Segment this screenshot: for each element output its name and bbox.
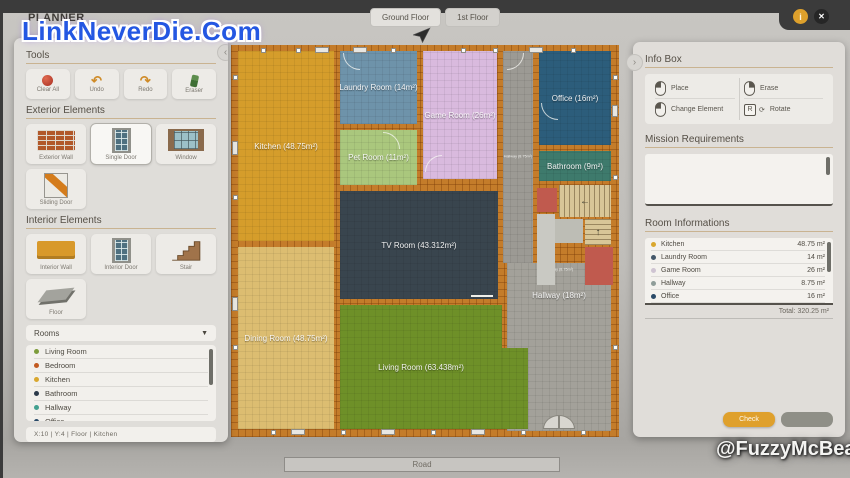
floor-tabs: Ground Floor 1st Floor xyxy=(370,8,500,27)
rooms-list-scrollbar[interactable] xyxy=(209,349,213,385)
room-color-dot xyxy=(34,349,39,354)
card-interior-wall[interactable]: Interior Wall xyxy=(26,234,86,274)
control-erase: Erase xyxy=(744,78,823,99)
stair-direction-arrow: ↑ xyxy=(596,227,601,238)
stair-direction-arrow: ← xyxy=(580,196,590,207)
floor-icon xyxy=(38,288,75,303)
door-opening xyxy=(232,297,238,311)
room-info-row-office: Office 16 m² xyxy=(651,290,825,303)
close-icon[interactable]: ✕ xyxy=(814,9,829,24)
sidebar-collapse-icon[interactable]: › xyxy=(626,54,643,71)
undo-button[interactable]: ↶ Undo xyxy=(75,69,119,99)
window-marker xyxy=(233,75,238,80)
window-marker xyxy=(571,48,576,53)
plan-room-living[interactable]: Living Room (63.438m²) xyxy=(340,305,502,429)
control-place: Place xyxy=(655,78,735,99)
rooms-dropdown[interactable]: Rooms ▼ xyxy=(26,325,216,341)
door-opening xyxy=(529,47,543,53)
tools-section-title: Tools xyxy=(26,50,216,64)
room-color-dot xyxy=(651,268,656,273)
door-opening xyxy=(471,429,485,435)
door-opening xyxy=(291,429,305,435)
door-opening xyxy=(232,141,238,155)
mouse-left-click-icon xyxy=(655,81,666,96)
room-color-dot xyxy=(34,377,39,382)
interior-wall-icon xyxy=(37,241,75,259)
undo-icon: ↶ xyxy=(91,75,102,86)
plan-room-dining[interactable]: Dining Room (48.75m²) xyxy=(238,247,334,429)
clear-all-button[interactable]: Clear All xyxy=(26,69,70,99)
window-marker xyxy=(233,345,238,350)
room-list-item-living-room[interactable]: Living Room xyxy=(34,345,208,359)
info-icon[interactable]: i xyxy=(793,9,808,24)
window-marker xyxy=(261,48,266,53)
eraser-button[interactable]: Eraser xyxy=(172,69,216,99)
plan-room-kitchen[interactable]: Kitchen (48.75m²) xyxy=(238,51,334,241)
mission-requirements-box[interactable] xyxy=(645,154,833,206)
mission-requirements-title: Mission Requirements xyxy=(645,134,833,148)
interior-door-icon xyxy=(112,238,131,263)
window-marker xyxy=(461,48,466,53)
check-button[interactable]: Check xyxy=(723,412,775,427)
interior-elements-title: Interior Elements xyxy=(26,215,216,229)
window-icon xyxy=(168,129,204,151)
confirm-button-disabled[interactable] xyxy=(781,412,833,427)
room-list-item-kitchen[interactable]: Kitchen xyxy=(34,373,208,387)
window-marker xyxy=(493,48,498,53)
tab-ground-floor[interactable]: Ground Floor xyxy=(370,8,441,27)
single-door-icon xyxy=(112,128,131,153)
window-marker xyxy=(431,430,436,435)
card-window[interactable]: Window xyxy=(156,124,216,164)
double-door-leaf xyxy=(543,415,559,429)
room-color-dot xyxy=(651,255,656,260)
clear-all-icon xyxy=(42,75,53,86)
room-total-area: Total: 320.25 m² xyxy=(645,308,833,315)
elements-sidebar: ‹ Tools Clear All ↶ Undo ↷ Redo Eraser E… xyxy=(14,38,228,442)
stair-run: ↑ xyxy=(585,219,611,245)
chevron-down-icon: ▼ xyxy=(201,330,208,337)
room-color-dot xyxy=(651,242,656,247)
window-marker xyxy=(233,195,238,200)
coordinates-status-bar: X:10 | Y:4 | Floor | Kitchen xyxy=(26,427,216,442)
card-sliding-door[interactable]: Sliding Door xyxy=(26,169,86,209)
room-info-row-game: Game Room 26 m² xyxy=(651,264,825,277)
road-label: Road xyxy=(284,457,560,472)
door-opening xyxy=(381,429,395,435)
room-informations-list[interactable]: Kitchen 48.75 m² Laundry Room 14 m² Game… xyxy=(645,238,833,305)
room-color-dot xyxy=(34,419,39,421)
card-floor[interactable]: Floor xyxy=(26,279,86,319)
exterior-wall-icon xyxy=(37,130,75,151)
room-info-row-hallway: Hallway 8.75 m² xyxy=(651,277,825,290)
info-sidebar: › Info Box Place Change Element Erase xyxy=(633,42,845,437)
info-box-title: Info Box xyxy=(645,54,833,68)
stair-landing xyxy=(555,219,583,243)
room-list-item-hallway[interactable]: Hallway xyxy=(34,401,208,415)
rotate-icon: ⟳ xyxy=(759,106,765,114)
card-interior-door[interactable]: Interior Door xyxy=(91,234,151,274)
stair-run: ← xyxy=(559,185,611,217)
redo-button[interactable]: ↷ Redo xyxy=(124,69,168,99)
controls-legend: Place Change Element Erase R ⟳ Rotate xyxy=(645,74,833,124)
control-change-element: Change Element xyxy=(655,99,735,120)
left-dark-strip xyxy=(0,0,3,478)
mouse-cursor-icon xyxy=(413,27,431,48)
window-marker xyxy=(391,48,396,53)
window-marker xyxy=(271,430,276,435)
tools-row: Clear All ↶ Undo ↷ Redo Eraser xyxy=(26,69,216,99)
plan-room-pet[interactable]: Pet Room (11m²) xyxy=(340,130,417,185)
card-single-door[interactable]: Single Door xyxy=(91,124,151,164)
window-marker xyxy=(613,175,618,180)
room-color-dot xyxy=(34,363,39,368)
plan-room-office[interactable]: Office (16m²) xyxy=(539,51,611,145)
mouse-left-click-icon xyxy=(655,102,666,117)
plan-staircase[interactable]: ← ↑ xyxy=(535,183,613,289)
window-marker xyxy=(341,430,346,435)
card-stair[interactable]: Stair xyxy=(156,234,216,274)
control-rotate: R ⟳ Rotate xyxy=(744,99,823,120)
mission-scrollbar[interactable] xyxy=(826,157,830,175)
stair-icon xyxy=(156,237,216,263)
room-list-item-office[interactable]: Office xyxy=(34,415,208,421)
plan-room-living-extension[interactable] xyxy=(502,348,528,429)
card-exterior-wall[interactable]: Exterior Wall xyxy=(26,124,86,164)
room-info-row-laundry: Laundry Room 14 m² xyxy=(651,251,825,264)
window-marker xyxy=(613,75,618,80)
sliding-door-icon xyxy=(44,173,68,198)
tab-1st-floor[interactable]: 1st Floor xyxy=(445,8,500,27)
window-marker xyxy=(521,430,526,435)
window-marker xyxy=(613,345,618,350)
mouse-right-click-icon xyxy=(744,81,755,96)
room-list-item-bedroom[interactable]: Bedroom xyxy=(34,359,208,373)
stair-platform-red xyxy=(585,247,613,285)
plan-room-bathroom[interactable]: Bathroom (9m²) xyxy=(539,151,611,181)
watermark-fuzzymcbear: @FuzzyMcBear xyxy=(716,438,850,461)
double-door-leaf xyxy=(559,415,575,429)
divider xyxy=(645,318,833,319)
window-marker xyxy=(296,48,301,53)
exterior-elements-title: Exterior Elements xyxy=(26,105,216,119)
room-info-scrollbar[interactable] xyxy=(827,242,831,272)
room-color-dot xyxy=(34,405,39,410)
room-color-dot xyxy=(651,294,656,299)
room-color-dot xyxy=(651,281,656,286)
stair-fill xyxy=(537,214,555,285)
floor-plan-canvas[interactable]: Kitchen (48.75m²) Laundry Room (14m²) Pe… xyxy=(231,45,619,437)
rooms-list: Living Room Bedroom Kitchen Bathroom Hal… xyxy=(26,345,216,421)
plan-room-tv[interactable]: TV Room (43.312m²) xyxy=(340,191,498,299)
exterior-elements-grid: Exterior Wall Single Door Window Sliding… xyxy=(26,124,216,209)
stair-platform-red xyxy=(537,188,557,212)
room-color-dot xyxy=(34,391,39,396)
interior-elements-grid: Interior Wall Interior Door Stair Floor xyxy=(26,234,216,319)
room-info-row-kitchen: Kitchen 48.75 m² xyxy=(651,238,825,251)
door-opening xyxy=(315,47,329,53)
door-opening xyxy=(612,105,618,117)
window-marker xyxy=(581,430,586,435)
room-list-item-bathroom[interactable]: Bathroom xyxy=(34,387,208,401)
room-informations-title: Room Informations xyxy=(645,218,833,232)
tv-room-door-marker xyxy=(471,295,493,297)
watermark-linkneverdie: LinkNeverDie.Com xyxy=(22,16,261,47)
planner-screen: PLANNER LinkNeverDie.Com Ground Floor 1s… xyxy=(0,0,850,478)
redo-icon: ↷ xyxy=(140,75,151,86)
key-r-icon: R xyxy=(744,104,756,116)
eraser-icon xyxy=(189,74,198,87)
plan-corridor-hallway-small[interactable]: Hallway (8.75m²) xyxy=(503,51,533,263)
